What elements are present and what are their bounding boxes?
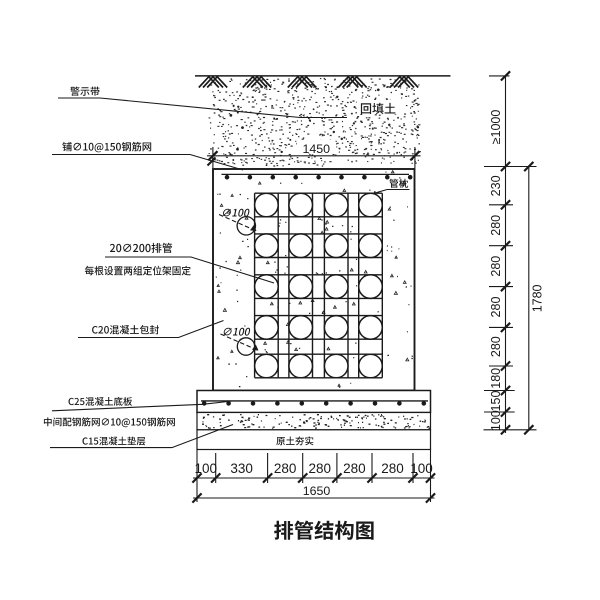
svg-text:100: 100 — [195, 461, 218, 476]
svg-text:280: 280 — [343, 461, 366, 476]
svg-text:180: 180 — [489, 368, 503, 389]
svg-text:280: 280 — [489, 215, 503, 236]
svg-text:1650: 1650 — [303, 484, 331, 498]
svg-text:280: 280 — [381, 461, 404, 476]
svg-text:280: 280 — [489, 256, 503, 277]
svg-text:≥1000: ≥1000 — [489, 110, 503, 145]
svg-text:150: 150 — [489, 391, 503, 412]
svg-text:330: 330 — [230, 461, 253, 476]
svg-text:280: 280 — [489, 297, 503, 318]
svg-text:280: 280 — [489, 336, 503, 357]
svg-text:1450: 1450 — [303, 142, 331, 156]
svg-text:1780: 1780 — [531, 284, 545, 312]
svg-text:100: 100 — [489, 410, 503, 431]
svg-text:230: 230 — [489, 175, 503, 196]
svg-text:100: 100 — [410, 461, 433, 476]
svg-text:280: 280 — [274, 461, 297, 476]
svg-text:280: 280 — [309, 461, 332, 476]
